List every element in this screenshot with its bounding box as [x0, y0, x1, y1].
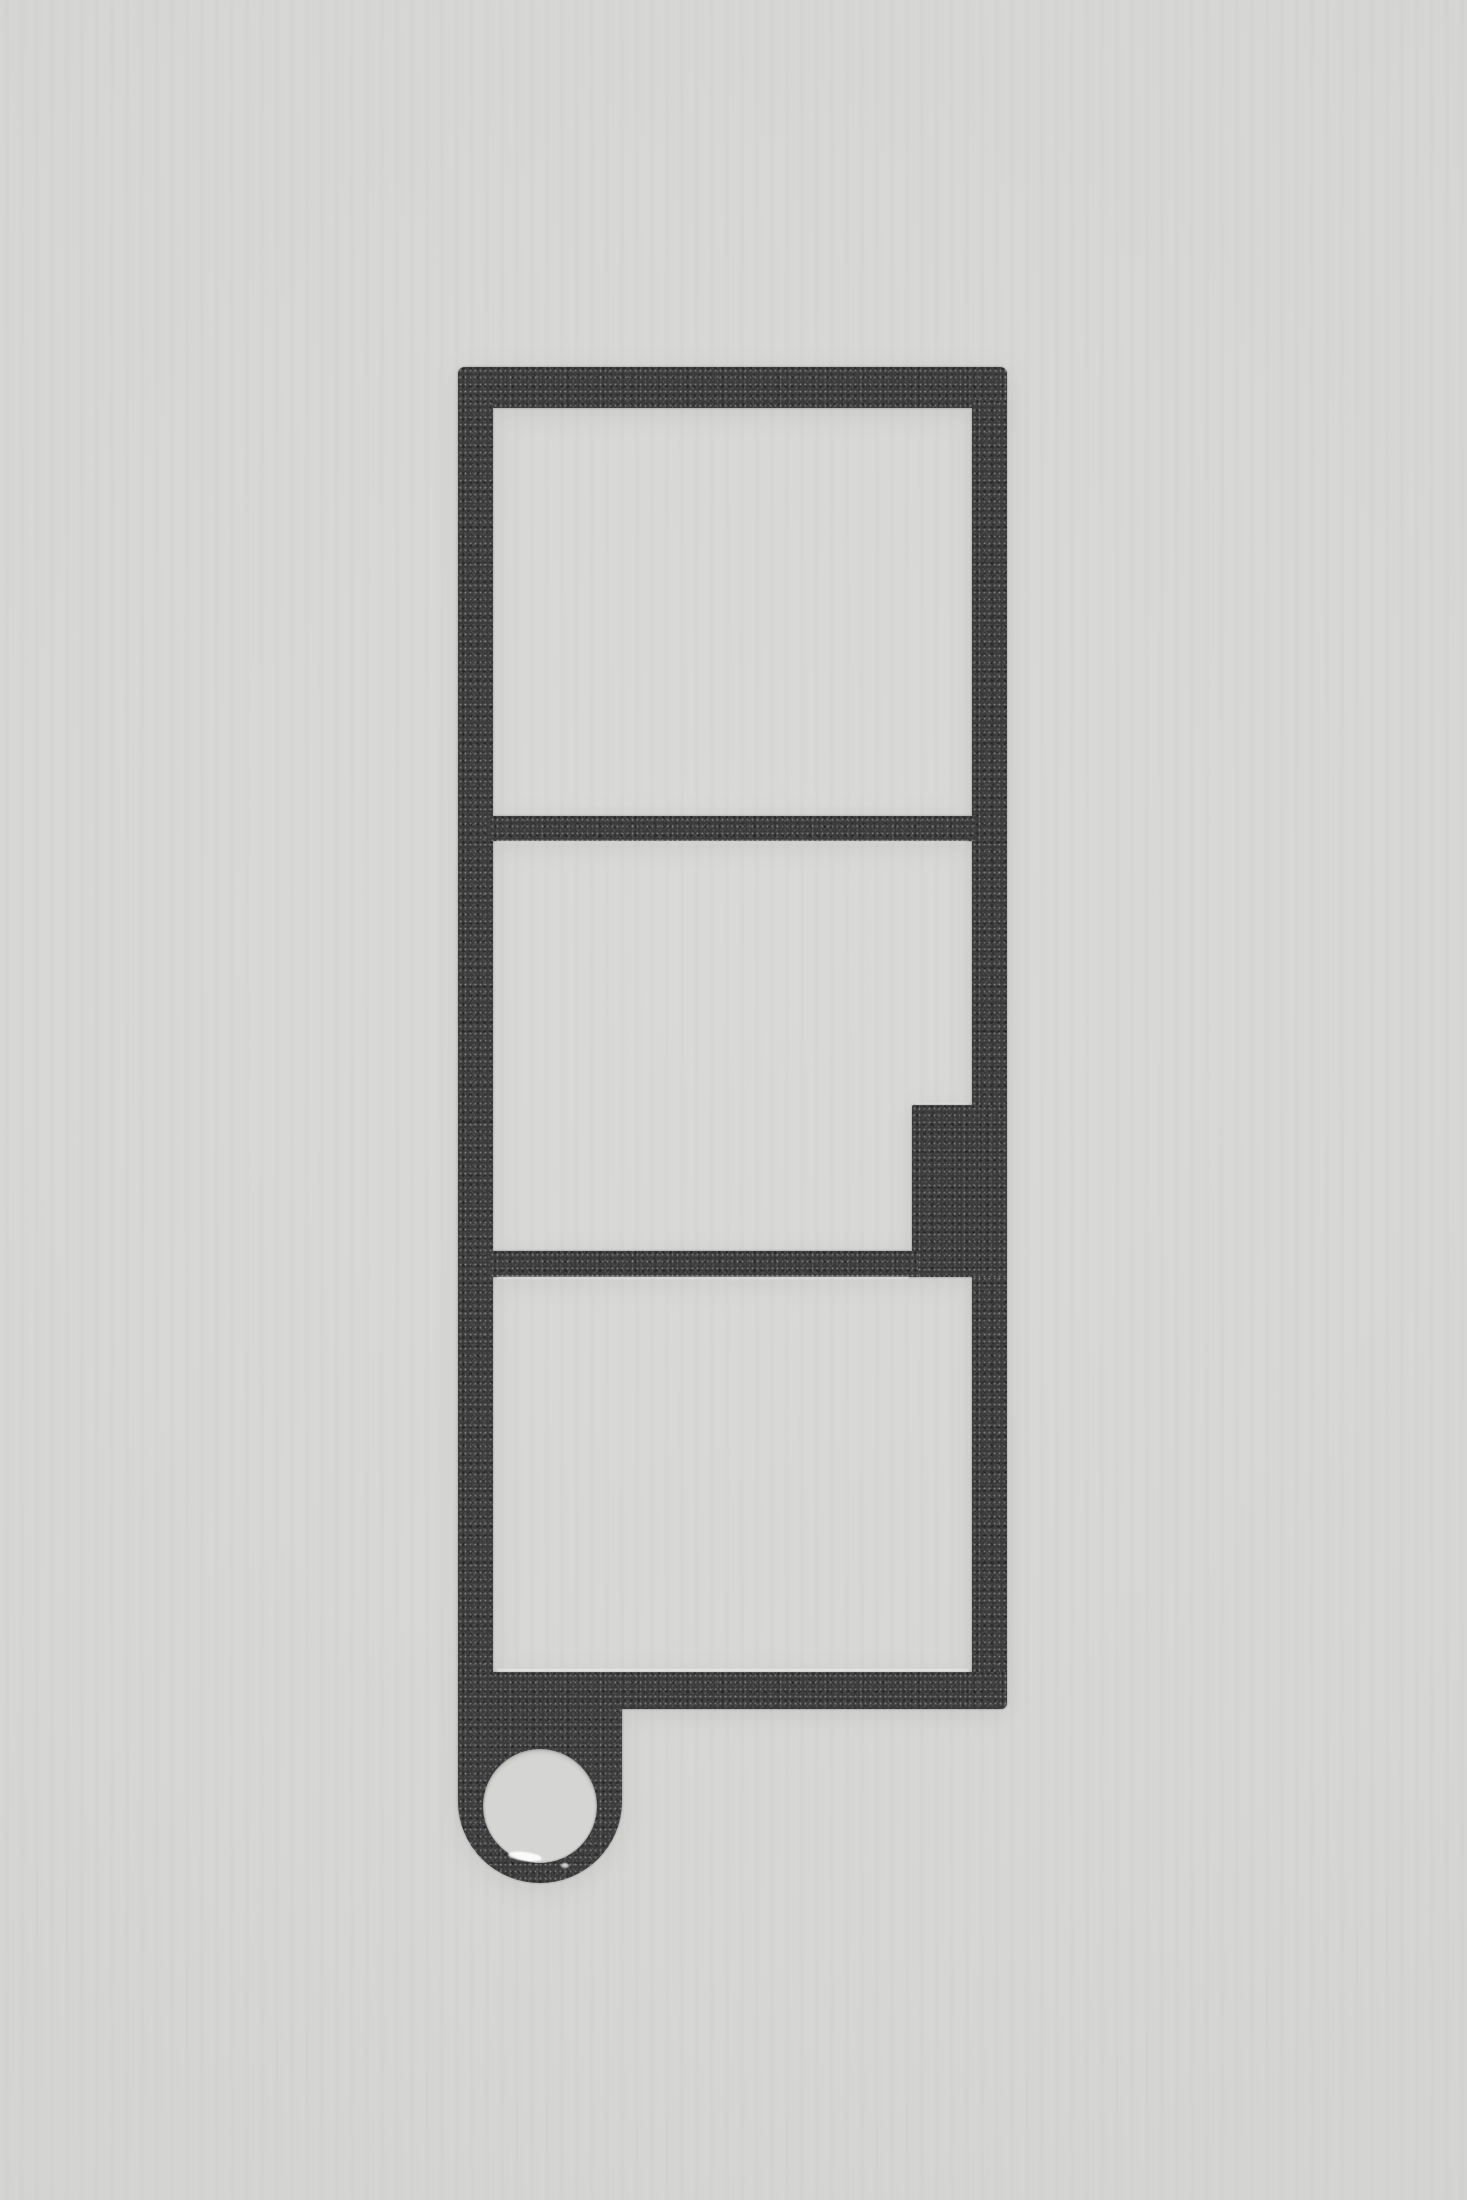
- hole-rim-highlight-small: [561, 1863, 569, 1868]
- edge-glint-under-divider-1: [497, 840, 967, 843]
- frame-notch-block: [912, 1105, 1007, 1277]
- frame-right-bar: [972, 400, 1007, 1695]
- frame-top-bar: [458, 367, 1007, 408]
- photo-canvas: [0, 0, 1467, 2200]
- edge-glint-above-bottom-bar: [497, 1669, 969, 1672]
- edge-glint-notch-ledge: [915, 1103, 969, 1105]
- edge-glint-under-divider-2: [497, 1276, 909, 1279]
- frame-divider-2: [490, 1251, 918, 1277]
- metal-frame-plate: [0, 0, 1467, 2200]
- frame-left-bar: [458, 400, 493, 1695]
- keyring-hole: [483, 1749, 597, 1863]
- frame-divider-1: [490, 816, 976, 841]
